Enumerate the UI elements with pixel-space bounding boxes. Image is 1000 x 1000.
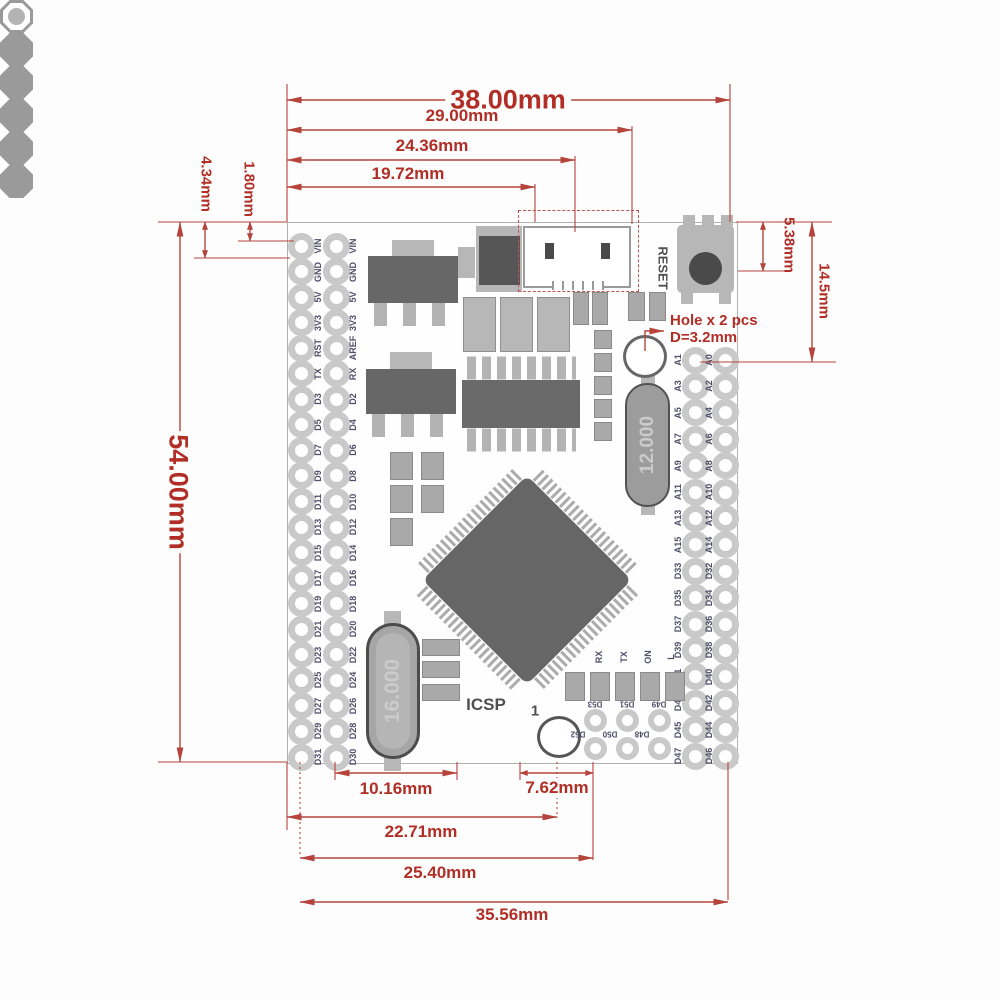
dim-label-19-72mm: 19.72mm: [372, 164, 445, 184]
dim-label-29mm: 29.00mm: [426, 106, 499, 126]
hole-note-line2: D=3.2mm: [670, 330, 758, 347]
hole-pointer-arrow: [645, 331, 664, 351]
dim-label-1-80mm: 1.80mm: [241, 161, 258, 217]
extension-lines: [158, 84, 836, 900]
dim-label-14-5mm: 14.5mm: [816, 263, 833, 319]
dim-label-35-56mm: 35.56mm: [476, 905, 549, 925]
dim-label-24-36mm: 24.36mm: [396, 136, 469, 156]
pcb-dimension-diagram: 12.000 16.000 RESET ICSP 1 VINVINGNDGND5…: [0, 0, 1000, 1000]
dim-label-5-38mm: 5.38mm: [781, 217, 798, 273]
dim-label-10-16mm: 10.16mm: [360, 779, 433, 799]
dim-label-22-71mm: 22.71mm: [385, 822, 458, 842]
dimension-lines: [180, 100, 812, 902]
hole-note-line1: Hole x 2 pcs: [670, 313, 758, 330]
dim-label-54mm: 54.00mm: [163, 431, 194, 553]
dim-label-25-40mm: 25.40mm: [404, 863, 477, 883]
dim-label-4-34mm: 4.34mm: [198, 156, 215, 212]
dimension-layer: [0, 0, 1000, 1000]
dim-label-7-62mm: 7.62mm: [522, 778, 591, 798]
hole-note: Hole x 2 pcs D=3.2mm: [670, 313, 758, 347]
